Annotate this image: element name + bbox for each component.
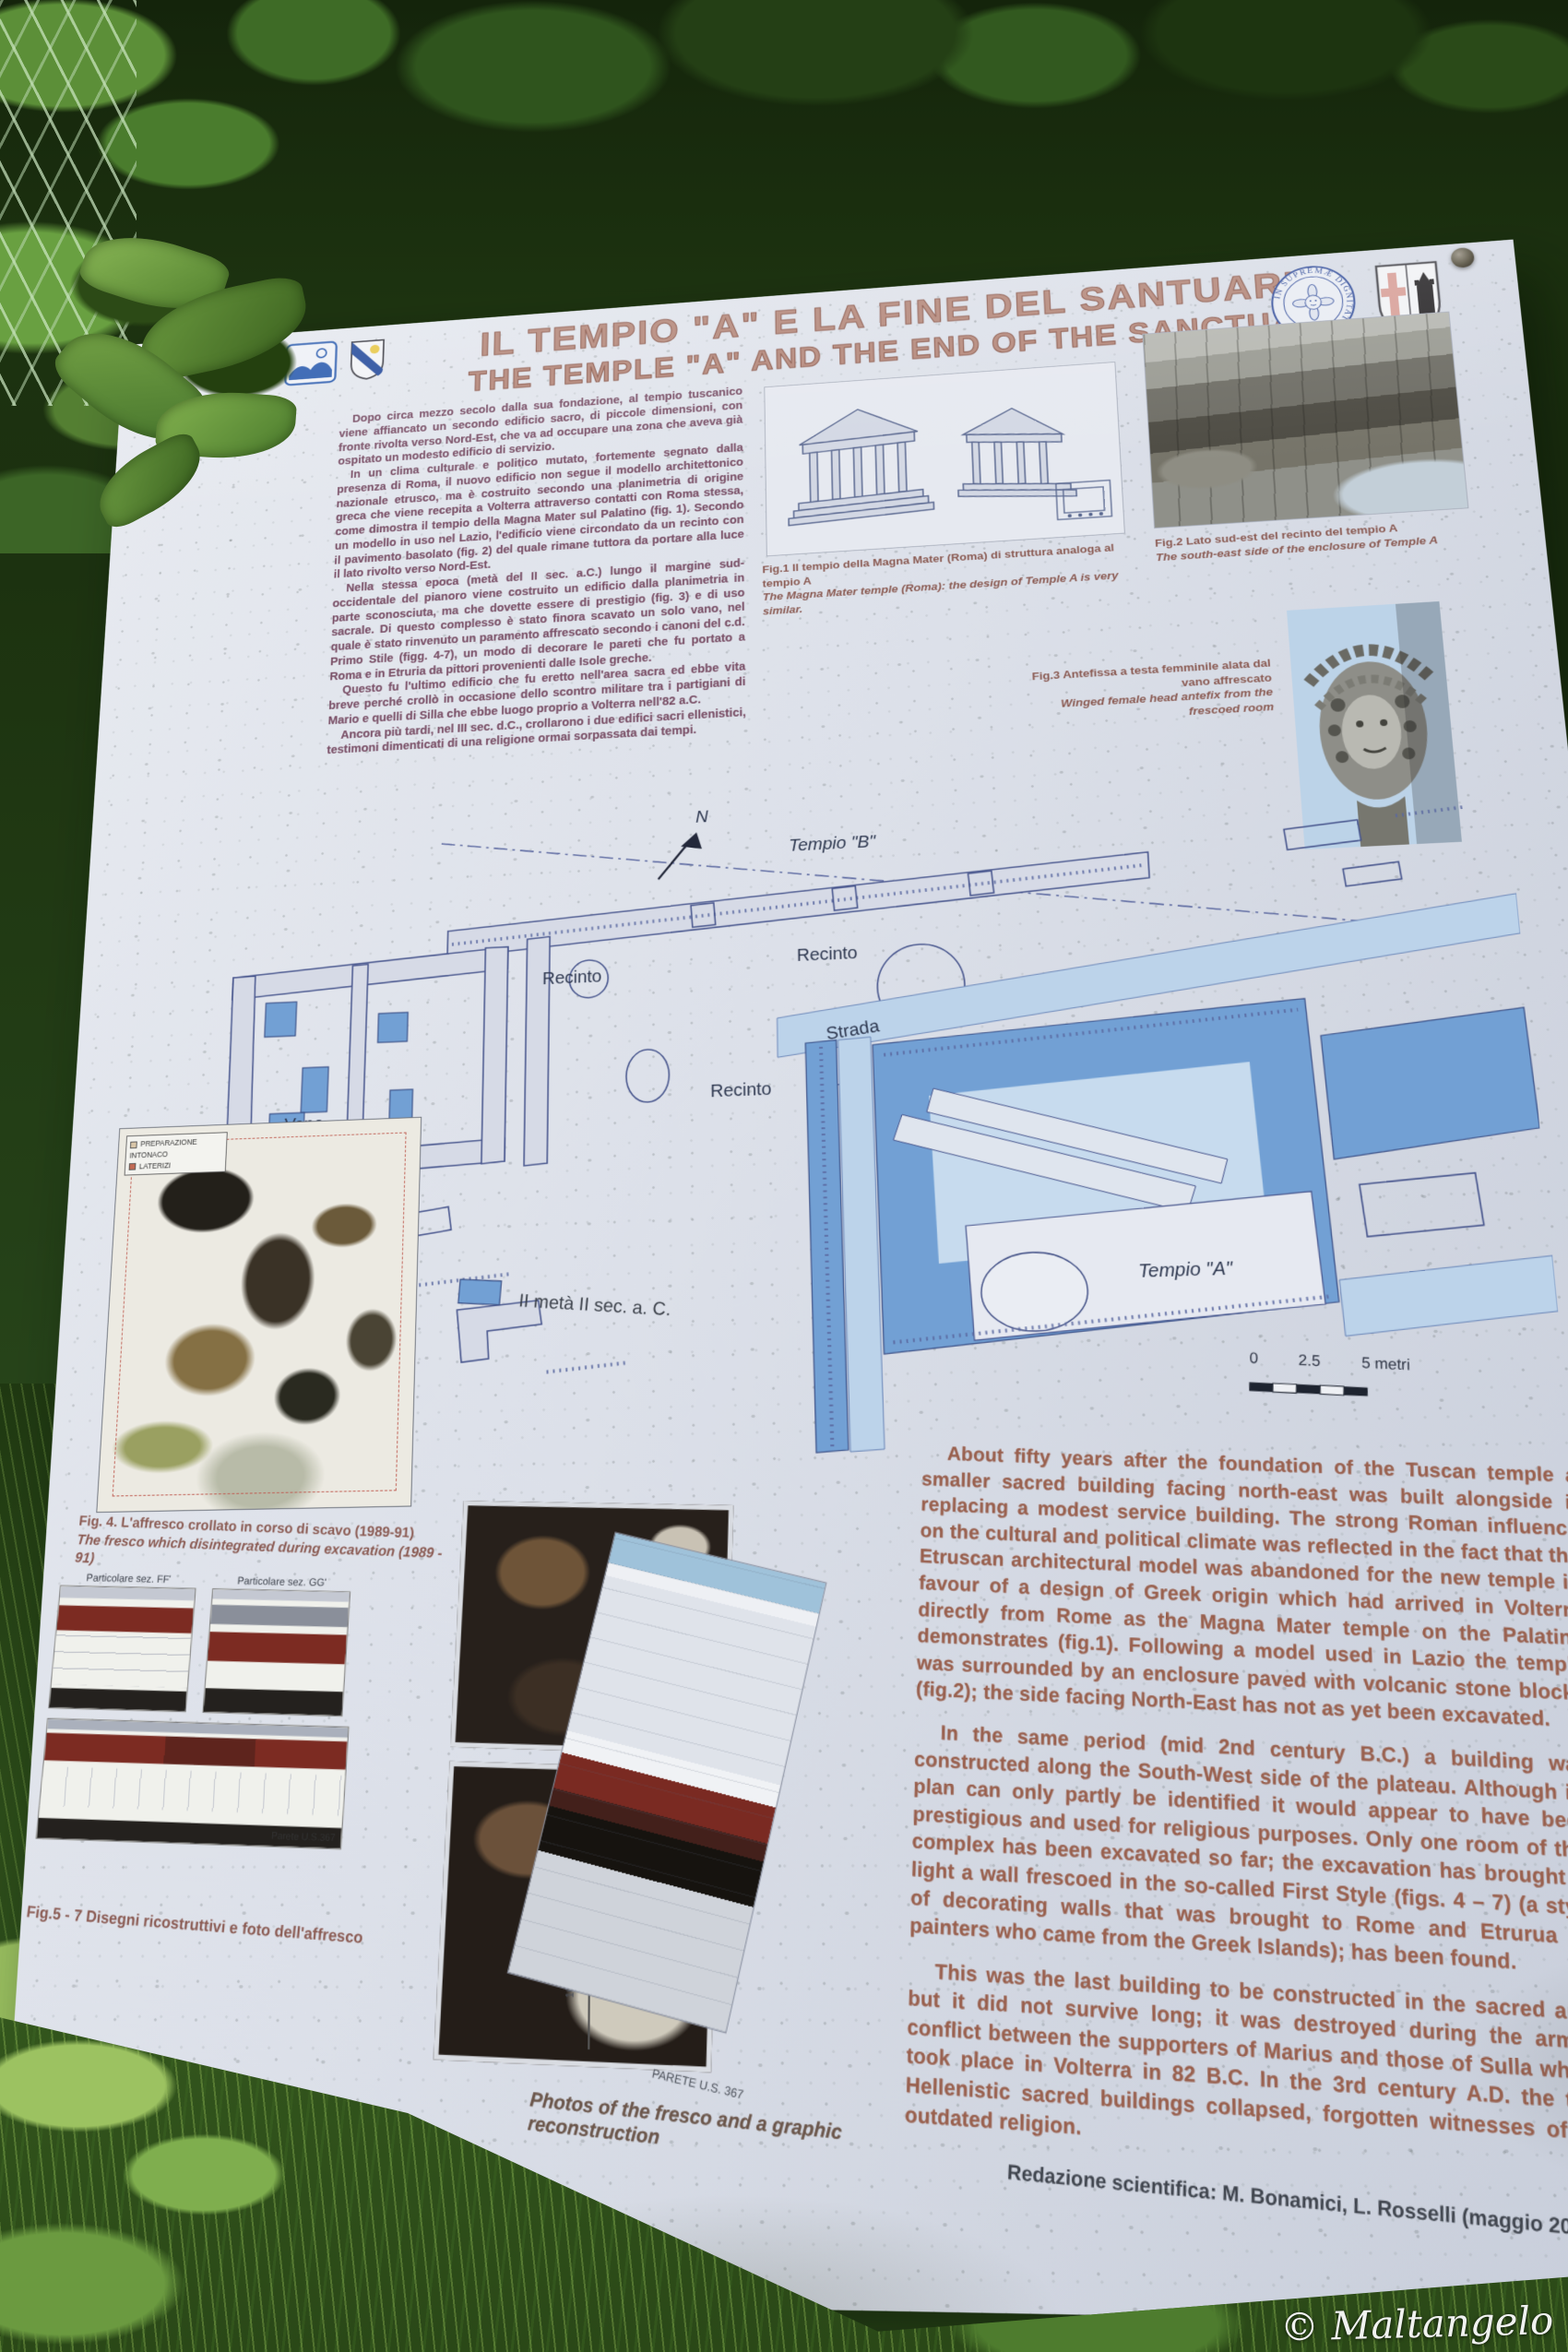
drawing-band	[210, 1605, 349, 1627]
english-paragraph: About fifty years after the foundation o…	[916, 1441, 1568, 1736]
figure3-caption: Fig.3 Antefissa a testa femminile alata …	[1030, 656, 1275, 727]
figure4-red-frame	[113, 1133, 407, 1497]
english-paragraph: In the same period (mid 2nd century B.C.…	[909, 1718, 1568, 1982]
figure1-temple-drawings	[764, 362, 1125, 556]
figure4-fresco-excavation-drawing: PREPARAZIONE INTONACO LATERIZI	[96, 1117, 422, 1513]
figures5-7-caption: Fig.5 - 7 Disegni ricostruttivi e foto d…	[25, 1903, 420, 1954]
map-label-recinto-2: Recinto	[797, 943, 858, 965]
section-ff: Particolare sez. FF'	[48, 1572, 197, 1712]
key-chip-laterizi	[129, 1163, 137, 1170]
section-ff-drawing	[48, 1586, 196, 1713]
map-label-recinto-3: Recinto	[710, 1078, 771, 1100]
section-drawings-row: Particolare sez. FF' Particolare sez. GG…	[48, 1572, 368, 1716]
intro-text-italian: Dopo circa mezzo secolo dalla sua fondaz…	[327, 384, 746, 757]
figure2-enclosure-photo	[1142, 312, 1468, 529]
svg-text:N: N	[695, 806, 709, 826]
key-chip-intonaco	[130, 1141, 137, 1148]
english-text-block: About fifty years after the foundation o…	[904, 1441, 1568, 2197]
drawing-band	[212, 1589, 350, 1602]
figure3-caption-it: Fig.3 Antefissa a testa femminile alata …	[1031, 657, 1272, 689]
figure4-caption: Fig. 4. L'affresco crollato in corso di …	[74, 1512, 457, 1582]
drawing-band	[40, 1766, 345, 1816]
map-label-tempio-a: Tempio "A"	[1138, 1257, 1235, 1281]
drawing-band	[52, 1633, 191, 1687]
section-gg: Particolare sez. GG'	[202, 1575, 351, 1716]
map-scale-bar: 0 2.5 5 metri	[1249, 1350, 1410, 1398]
overhanging-leaves	[37, 221, 369, 572]
figure1-caption-en: The Magna Mater temple (Roma): the desig…	[763, 567, 1138, 618]
figure4-key-box: PREPARAZIONE INTONACO LATERIZI	[125, 1132, 228, 1176]
figures5-7-caption-it: Fig.5 - 7 Disegni ricostruttivi e foto d…	[26, 1904, 364, 1947]
english-paragraph: This was the last building to be constru…	[905, 1956, 1568, 2180]
drawing-band	[49, 1688, 186, 1711]
drawing-band	[60, 1586, 196, 1601]
svg-text:2.5: 2.5	[1299, 1352, 1321, 1370]
figure5-section-drawings: Particolare sez. FF' Particolare sez. GG…	[36, 1572, 368, 1849]
map-label-tempio-b: Tempio "B"	[789, 831, 877, 855]
drawing-band	[44, 1733, 348, 1770]
photo-scene: IL TEMPIO "A" E LA FINE DEL SANTUARIO TH…	[0, 0, 1568, 2352]
screw-top-right	[1450, 247, 1475, 268]
section-gg-label: Particolare sez. GG'	[212, 1575, 351, 1590]
magna-mater-temple-drawing-icon	[765, 362, 1126, 556]
section-gg-drawing	[202, 1588, 350, 1716]
map-label-recinto-1: Recinto	[542, 966, 602, 988]
section-ff-label: Particolare sez. FF'	[60, 1572, 196, 1586]
wall-us367-label: Parete U.S.367	[271, 1831, 336, 1844]
map-temple-a-enclosure: Tempio "A"	[872, 998, 1342, 1354]
leaf-icon	[86, 428, 214, 532]
drawing-band	[204, 1688, 343, 1716]
north-arrow-icon: N	[659, 806, 709, 879]
svg-text:0: 0	[1250, 1350, 1259, 1368]
drawing-band	[208, 1632, 347, 1664]
drawing-band	[56, 1605, 193, 1633]
svg-text:5 metri: 5 metri	[1361, 1355, 1410, 1374]
photographer-watermark: © Maltangelo	[1279, 2298, 1553, 2350]
figure3-caption-en: Winged female head antefix from the fres…	[1031, 684, 1274, 727]
parete-us367-label: PARETE U.S. 367	[651, 2068, 744, 2102]
wall-elevation-drawing: Parete U.S.367	[36, 1718, 350, 1849]
